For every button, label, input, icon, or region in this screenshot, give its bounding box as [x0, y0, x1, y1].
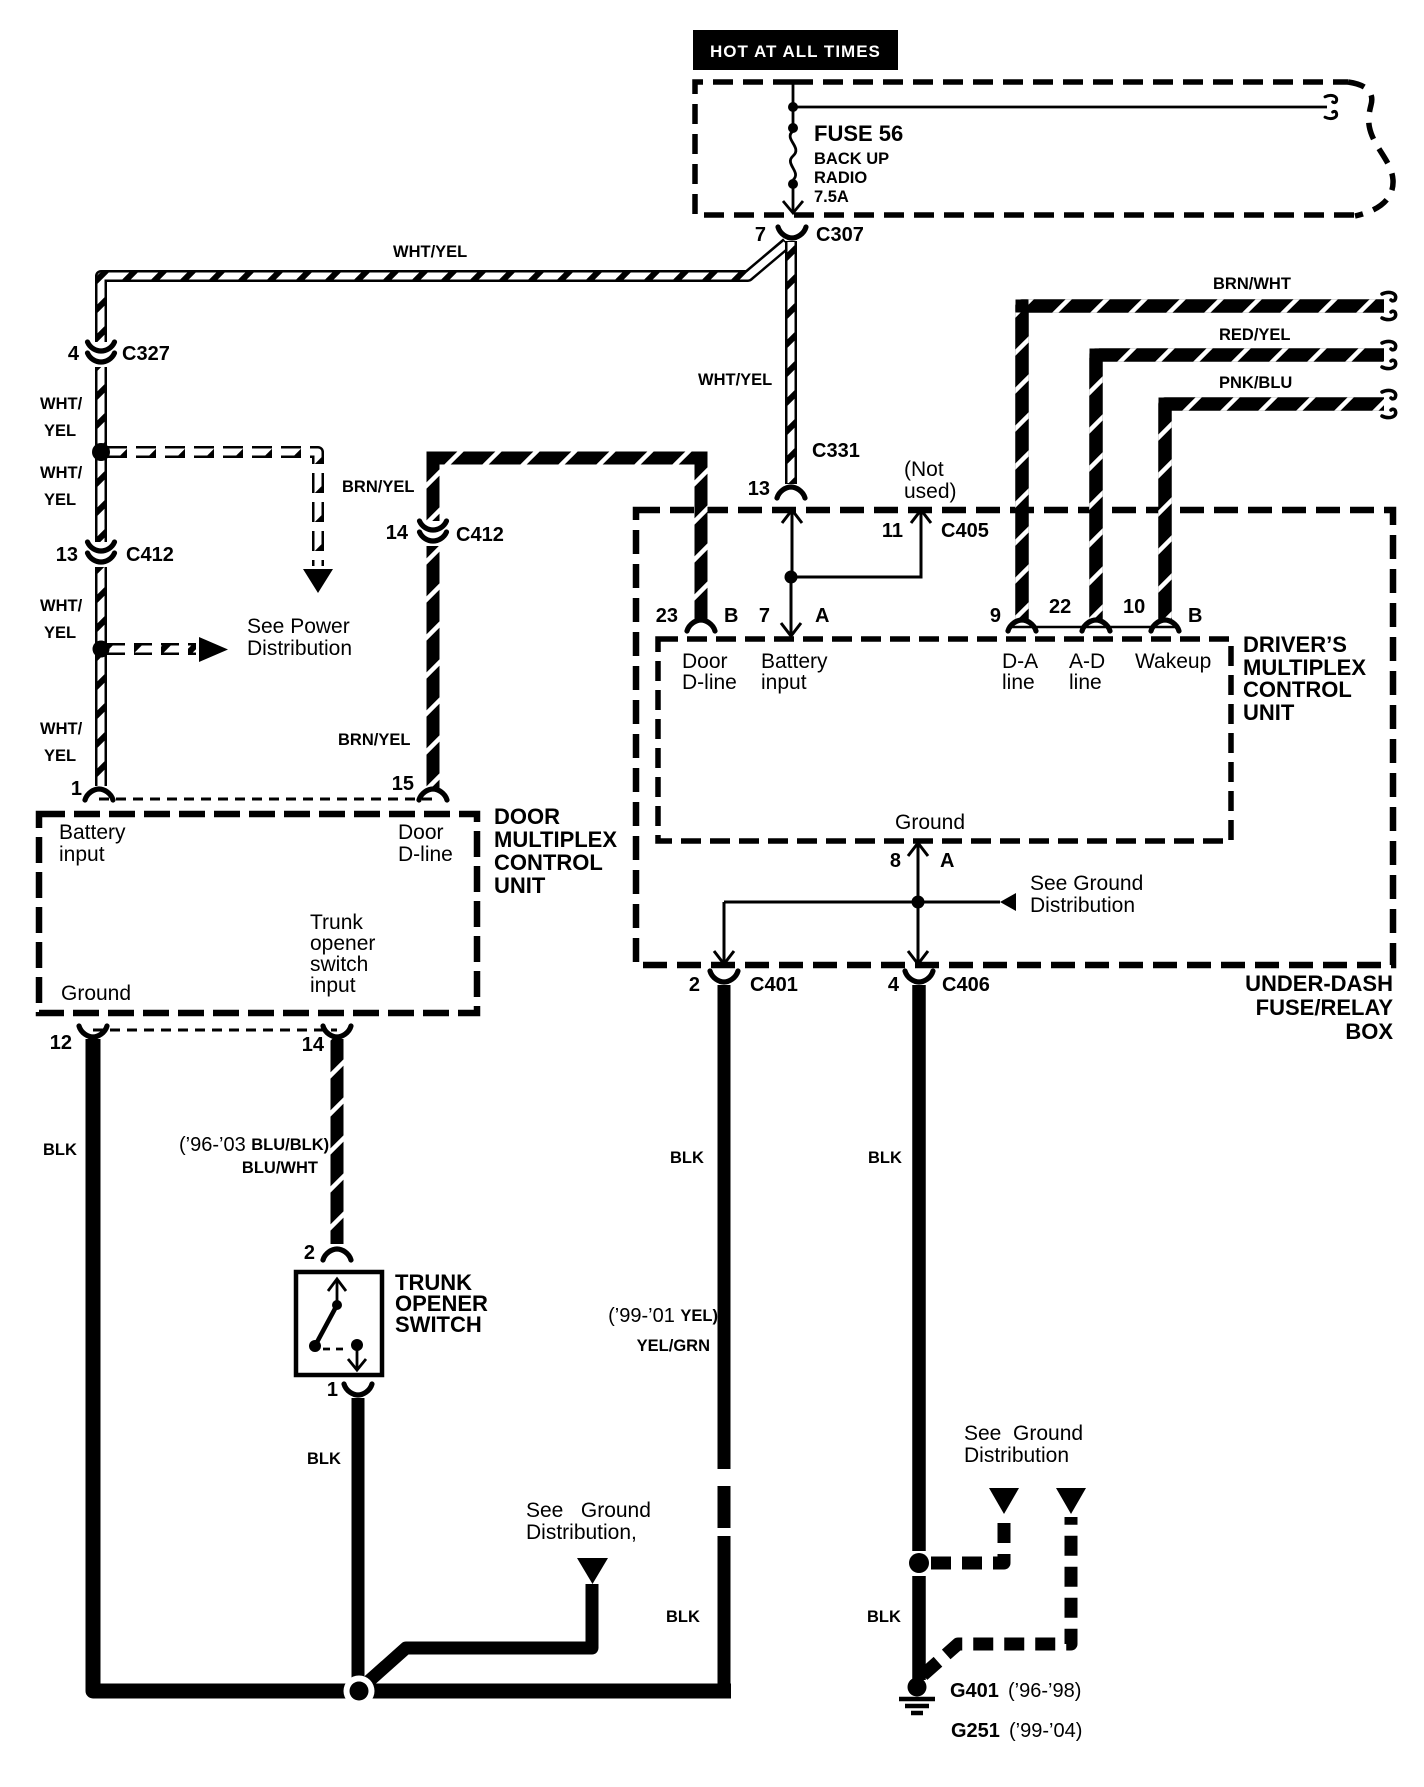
svg-text:RED/YEL: RED/YEL [1219, 326, 1291, 344]
svg-text:14: 14 [302, 1034, 325, 1056]
svg-text:FUSE 56: FUSE 56 [814, 121, 903, 146]
svg-text:Trunk: Trunk [310, 911, 363, 934]
svg-text:C401: C401 [750, 974, 798, 996]
svg-text:D-line: D-line [682, 671, 737, 694]
svg-text:C406: C406 [942, 974, 990, 996]
svg-text:See Ground: See Ground [1030, 872, 1143, 895]
svg-text:WHT/YEL: WHT/YEL [393, 243, 467, 261]
svg-text:SWITCH: SWITCH [395, 1312, 482, 1337]
svg-text:BRN/YEL: BRN/YEL [342, 478, 414, 496]
svg-text:1: 1 [327, 1379, 338, 1401]
svg-text:WHT/YEL: WHT/YEL [698, 371, 772, 389]
svg-text:CONTROL: CONTROL [494, 850, 603, 875]
svg-text:13: 13 [56, 544, 78, 566]
svg-text:PNK/BLU: PNK/BLU [1219, 374, 1292, 392]
svg-text:12: 12 [50, 1032, 72, 1054]
svg-text:BRN/WHT: BRN/WHT [1213, 275, 1291, 293]
svg-text:(’99-’01 YEL): (’99-’01 YEL) [608, 1305, 718, 1327]
svg-text:(’99-’04): (’99-’04) [1009, 1720, 1082, 1742]
svg-text:BLK: BLK [867, 1608, 901, 1626]
svg-text:D-line: D-line [398, 843, 453, 866]
svg-text:B: B [724, 605, 738, 627]
svg-text:UNIT: UNIT [1243, 700, 1295, 725]
svg-text:10: 10 [1123, 596, 1145, 618]
svg-text:CONTROL: CONTROL [1243, 677, 1352, 702]
svg-text:WHT/: WHT/ [40, 597, 83, 615]
svg-text:DOOR: DOOR [494, 804, 560, 829]
svg-text:BLK: BLK [670, 1149, 704, 1167]
svg-text:11: 11 [882, 520, 903, 542]
svg-text:Battery: Battery [59, 821, 126, 844]
svg-text:YEL: YEL [44, 624, 76, 642]
svg-text:2: 2 [689, 974, 700, 996]
svg-text:Ground: Ground [61, 982, 131, 1005]
svg-text:C331: C331 [812, 440, 860, 462]
svg-text:YEL: YEL [44, 422, 76, 440]
svg-text:RADIO: RADIO [814, 169, 867, 187]
svg-text:Door: Door [398, 821, 444, 844]
svg-text:7: 7 [759, 605, 770, 627]
svg-text:G251: G251 [951, 1720, 1000, 1742]
svg-text:8: 8 [890, 850, 901, 872]
svg-text:BLK: BLK [868, 1149, 902, 1167]
svg-text:See Ground: See Ground [526, 1499, 651, 1522]
svg-text:opener: opener [310, 932, 375, 955]
svg-text:7.5A: 7.5A [814, 188, 849, 206]
svg-text:B: B [1188, 605, 1202, 627]
svg-text:input: input [310, 974, 356, 997]
svg-text:C307: C307 [816, 224, 864, 246]
svg-text:MULTIPLEX: MULTIPLEX [494, 827, 617, 852]
svg-text:15: 15 [392, 773, 414, 795]
svg-text:4: 4 [68, 343, 80, 365]
svg-text:C405: C405 [941, 520, 989, 542]
svg-text:used): used) [904, 480, 957, 503]
svg-text:Battery: Battery [761, 650, 828, 673]
svg-text:Ground: Ground [895, 811, 965, 834]
svg-text:1: 1 [71, 778, 82, 800]
svg-text:BOX: BOX [1345, 1019, 1393, 1044]
svg-text:(Not: (Not [904, 458, 944, 481]
svg-text:A: A [815, 605, 829, 627]
svg-text:C327: C327 [122, 343, 170, 365]
svg-text:switch: switch [310, 953, 368, 976]
svg-text:(’96-’98): (’96-’98) [1008, 1680, 1081, 1702]
svg-text:HOT AT ALL TIMES: HOT AT ALL TIMES [710, 42, 881, 61]
svg-text:input: input [59, 843, 105, 866]
svg-text:UNIT: UNIT [494, 873, 546, 898]
svg-text:UNDER-DASH: UNDER-DASH [1245, 971, 1393, 996]
svg-text:23: 23 [656, 605, 678, 627]
svg-text:A-D: A-D [1069, 650, 1105, 673]
svg-text:4: 4 [888, 974, 900, 996]
svg-text:Distribution,: Distribution, [526, 1521, 637, 1544]
svg-text:(’96-’03 BLU/BLK): (’96-’03 BLU/BLK) [179, 1134, 329, 1156]
svg-text:22: 22 [1049, 596, 1071, 618]
svg-text:YEL: YEL [44, 491, 76, 509]
svg-text:Distribution: Distribution [964, 1444, 1069, 1467]
svg-text:WHT/: WHT/ [40, 464, 83, 482]
svg-text:7: 7 [755, 224, 766, 246]
svg-text:line: line [1069, 671, 1102, 694]
svg-text:WHT/: WHT/ [40, 395, 83, 413]
svg-text:BLK: BLK [307, 1450, 341, 1468]
svg-text:WHT/: WHT/ [40, 720, 83, 738]
svg-text:See Ground: See Ground [964, 1422, 1083, 1445]
svg-text:line: line [1002, 671, 1035, 694]
svg-text:Distribution: Distribution [1030, 894, 1135, 917]
svg-text:Distribution: Distribution [247, 637, 352, 660]
svg-text:Wakeup: Wakeup [1135, 650, 1211, 673]
svg-text:2: 2 [304, 1242, 315, 1264]
svg-text:14: 14 [386, 522, 409, 544]
svg-text:C412: C412 [456, 524, 504, 546]
svg-text:YEL/GRN: YEL/GRN [637, 1337, 710, 1355]
svg-text:BLK: BLK [666, 1608, 700, 1626]
svg-text:C412: C412 [126, 544, 174, 566]
svg-text:Door: Door [682, 650, 728, 673]
svg-text:A: A [940, 850, 954, 872]
svg-text:BACK UP: BACK UP [814, 150, 889, 168]
svg-text:FUSE/RELAY: FUSE/RELAY [1256, 995, 1394, 1020]
svg-text:9: 9 [990, 605, 1001, 627]
svg-text:BLK: BLK [43, 1141, 77, 1159]
svg-text:DRIVER’S: DRIVER’S [1243, 632, 1347, 657]
svg-text:See Power: See Power [247, 615, 350, 638]
svg-text:input: input [761, 671, 807, 694]
svg-text:D-A: D-A [1002, 650, 1038, 673]
svg-text:G401: G401 [950, 1680, 999, 1702]
svg-text:YEL: YEL [44, 747, 76, 765]
svg-text:BRN/YEL: BRN/YEL [338, 731, 410, 749]
svg-text:13: 13 [748, 478, 770, 500]
svg-text:BLU/WHT: BLU/WHT [242, 1159, 318, 1177]
